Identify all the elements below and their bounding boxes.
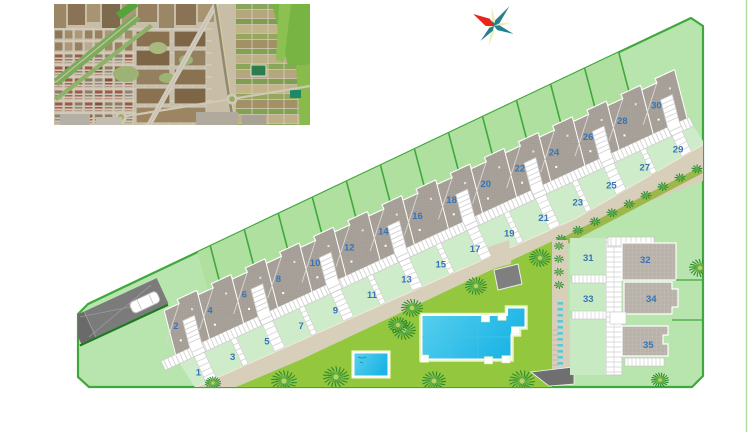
svg-text:31: 31 — [583, 253, 594, 264]
svg-text:3: 3 — [230, 352, 235, 363]
svg-text:30: 30 — [651, 100, 662, 111]
svg-text:29: 29 — [673, 145, 684, 156]
svg-text:15: 15 — [436, 259, 447, 270]
svg-text:24: 24 — [549, 148, 560, 159]
svg-text:10: 10 — [310, 258, 321, 269]
svg-text:14: 14 — [378, 227, 389, 238]
svg-text:32: 32 — [640, 255, 651, 266]
svg-text:22: 22 — [515, 164, 526, 175]
svg-text:11: 11 — [367, 290, 378, 301]
svg-text:16: 16 — [412, 211, 423, 222]
svg-text:5: 5 — [264, 337, 270, 348]
svg-text:21: 21 — [538, 213, 549, 224]
svg-text:13: 13 — [401, 275, 412, 286]
svg-text:12: 12 — [344, 242, 355, 253]
svg-text:18: 18 — [446, 195, 457, 206]
svg-text:8: 8 — [276, 274, 281, 285]
svg-text:19: 19 — [504, 228, 515, 239]
svg-text:17: 17 — [470, 244, 481, 255]
svg-text:25: 25 — [606, 180, 617, 191]
svg-text:4: 4 — [207, 305, 213, 316]
svg-text:33: 33 — [583, 294, 594, 305]
svg-text:23: 23 — [573, 198, 584, 209]
svg-text:9: 9 — [333, 306, 338, 317]
svg-text:7: 7 — [299, 321, 304, 332]
svg-text:34: 34 — [646, 294, 657, 305]
svg-text:1: 1 — [196, 368, 202, 379]
svg-text:2: 2 — [173, 321, 178, 332]
svg-text:28: 28 — [617, 116, 628, 127]
svg-text:20: 20 — [481, 179, 492, 190]
svg-text:27: 27 — [640, 163, 651, 174]
svg-text:26: 26 — [583, 132, 594, 143]
svg-text:35: 35 — [643, 340, 654, 351]
svg-text:6: 6 — [242, 290, 247, 301]
